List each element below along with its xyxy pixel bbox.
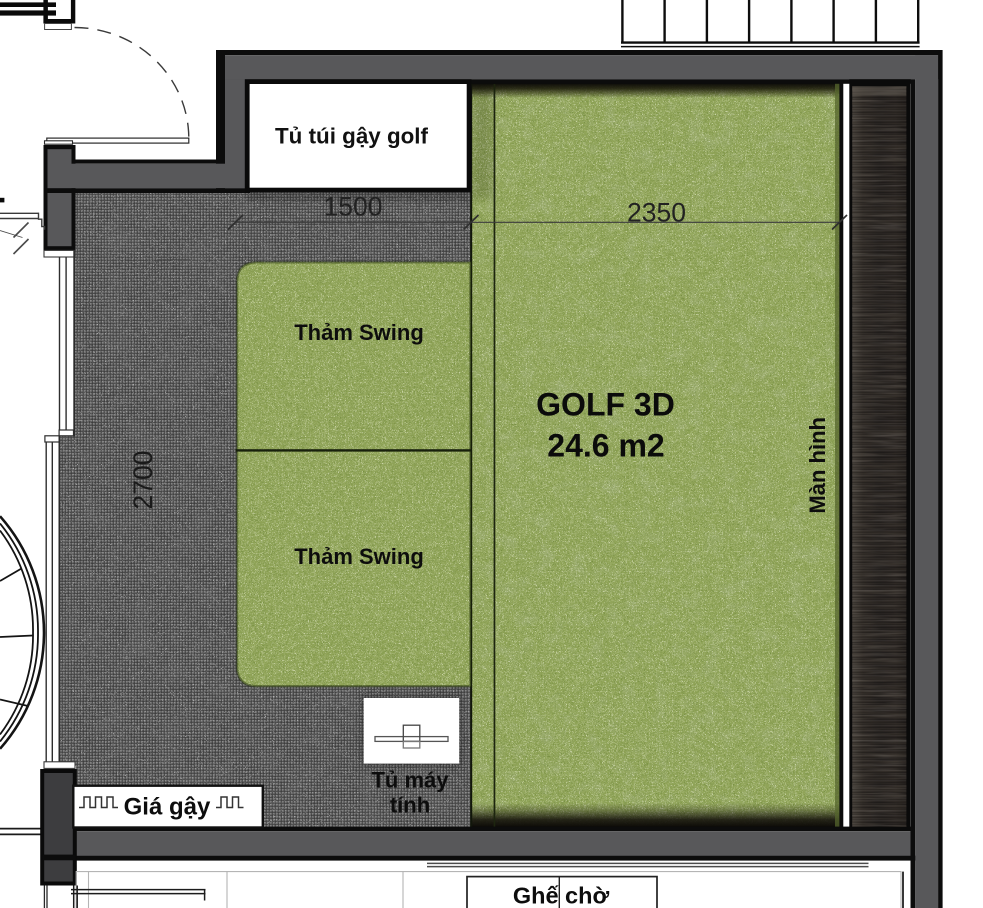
svg-text:1500: 1500 xyxy=(324,192,383,222)
svg-text:Tủ máy: Tủ máy xyxy=(371,768,449,793)
svg-text:Giá gậy: Giá gậy xyxy=(124,794,211,821)
svg-text:Màn hình: Màn hình xyxy=(805,417,830,514)
svg-text:Thảm Swing: Thảm Swing xyxy=(294,544,424,569)
svg-text:24.6 m2: 24.6 m2 xyxy=(547,428,664,464)
svg-text:2350: 2350 xyxy=(627,198,686,228)
svg-text:tính: tính xyxy=(390,793,430,818)
svg-text:GOLF 3D: GOLF 3D xyxy=(536,387,675,423)
svg-text:Ghế chờ: Ghế chờ xyxy=(513,883,610,908)
svg-text:Thảm Swing: Thảm Swing xyxy=(294,320,424,345)
svg-text:Tủ túi gậy golf: Tủ túi gậy golf xyxy=(275,124,429,149)
svg-text:2700: 2700 xyxy=(128,451,158,510)
